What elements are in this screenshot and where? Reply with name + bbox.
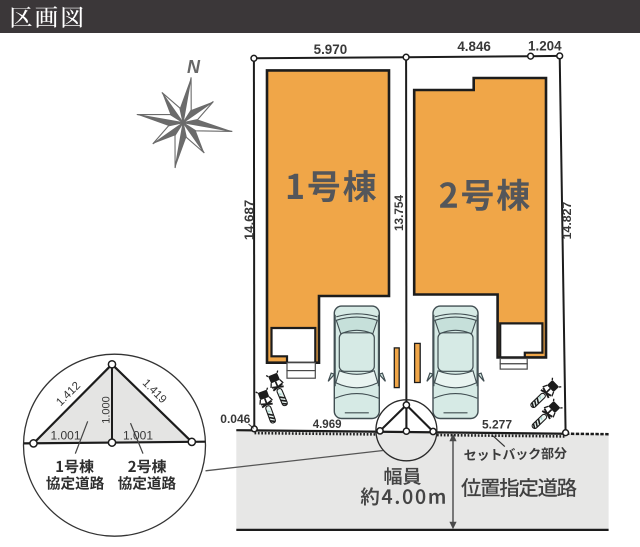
svg-text:N: N (187, 57, 201, 77)
svg-text:0.046: 0.046 (220, 412, 250, 426)
svg-text:1.000: 1.000 (101, 396, 113, 424)
svg-text:14.687: 14.687 (241, 200, 256, 240)
svg-text:14.827: 14.827 (560, 202, 574, 240)
svg-text:1.001: 1.001 (123, 428, 153, 442)
svg-text:5.277: 5.277 (482, 418, 512, 432)
svg-text:13.754: 13.754 (392, 195, 406, 232)
svg-text:4.969: 4.969 (313, 419, 342, 431)
svg-text:5.970: 5.970 (314, 42, 348, 57)
svg-text:4.846: 4.846 (457, 39, 491, 54)
svg-text:1.001: 1.001 (50, 428, 80, 442)
svg-text:1.204: 1.204 (528, 39, 562, 54)
